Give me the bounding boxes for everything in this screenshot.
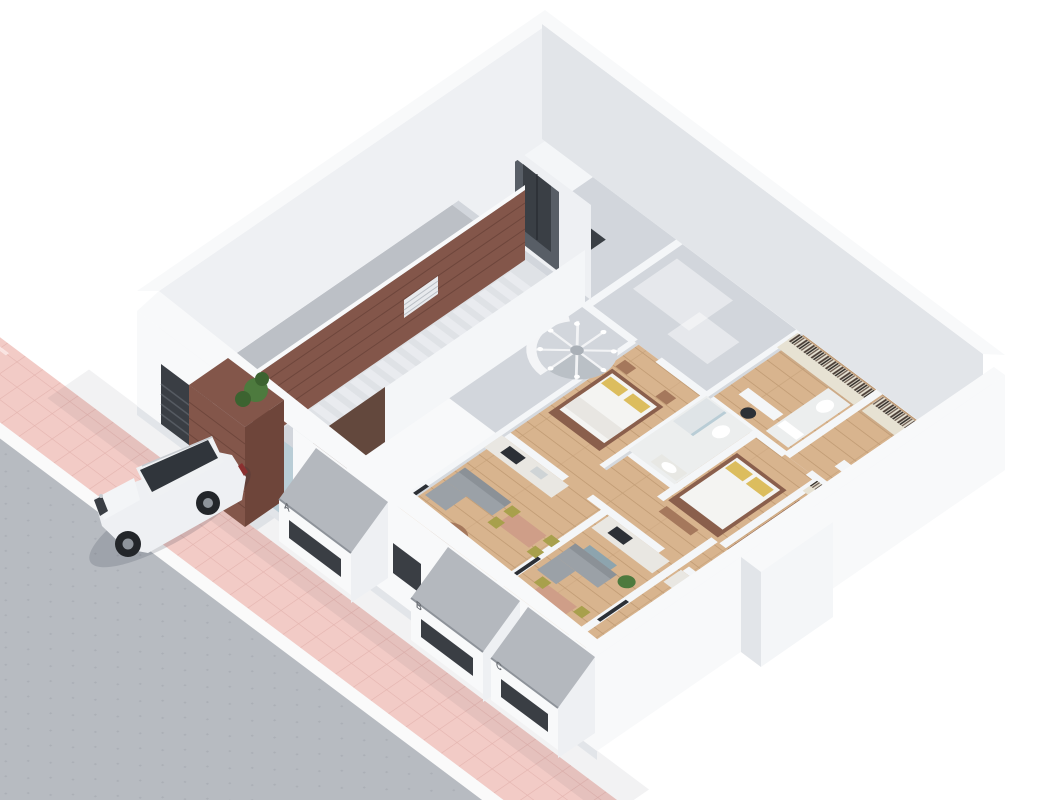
car-rear-hub: [203, 498, 213, 508]
entrance-plant-2: [235, 391, 251, 407]
car-headlight: [99, 494, 103, 498]
entrance-plant-3: [255, 372, 269, 386]
isometric-floorplan-scene: A B C: [0, 0, 1042, 800]
car-front-hub: [123, 539, 134, 550]
render-stage: A B C: [0, 0, 1042, 800]
